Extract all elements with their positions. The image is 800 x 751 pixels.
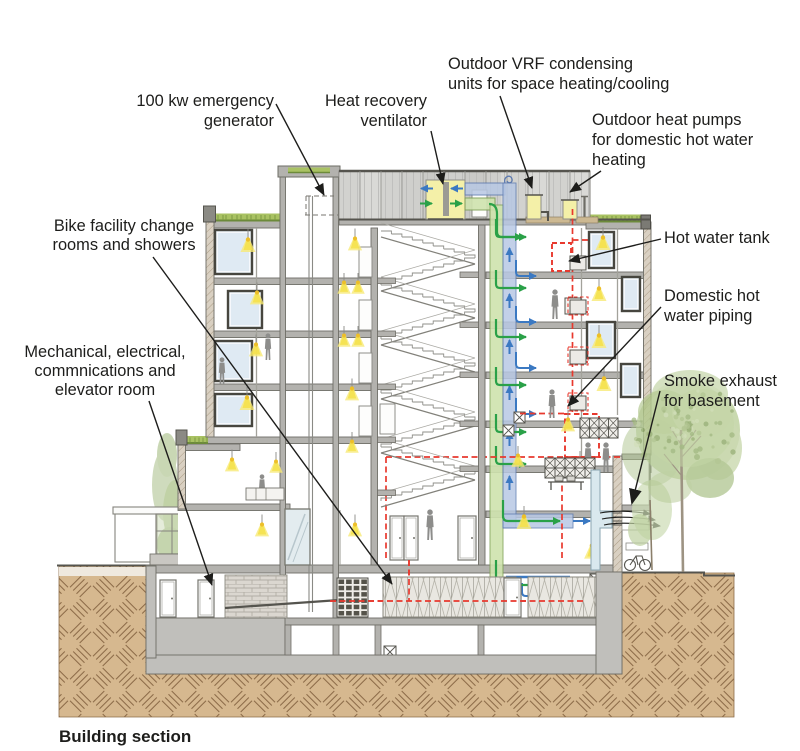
svg-text:water piping: water piping <box>663 307 752 325</box>
svg-text:elevator room: elevator room <box>55 381 155 399</box>
svg-text:generator: generator <box>204 112 275 130</box>
svg-text:Mechanical, electrical,: Mechanical, electrical, <box>24 343 185 361</box>
svg-text:for domestic hot water: for domestic hot water <box>592 131 754 149</box>
svg-text:Outdoor VRF condensing: Outdoor VRF condensing <box>448 55 633 73</box>
svg-text:for basement: for basement <box>664 392 760 410</box>
svg-text:Smoke exhaust: Smoke exhaust <box>664 372 777 390</box>
svg-text:rooms and showers: rooms and showers <box>52 236 195 254</box>
svg-text:Bike facility change: Bike facility change <box>54 217 194 235</box>
svg-text:units for space heating/coolin: units for space heating/cooling <box>448 75 669 93</box>
svg-text:Domestic hot: Domestic hot <box>664 287 760 305</box>
svg-text:commnications and: commnications and <box>34 362 175 380</box>
svg-text:Building section: Building section <box>59 727 191 746</box>
svg-text:Heat recovery: Heat recovery <box>325 92 428 110</box>
svg-text:Hot water tank: Hot water tank <box>664 229 770 247</box>
svg-text:ventilator: ventilator <box>360 112 427 130</box>
svg-text:Outdoor heat pumps: Outdoor heat pumps <box>592 111 741 129</box>
svg-text:100 kw emergency: 100 kw emergency <box>136 92 274 110</box>
svg-text:heating: heating <box>592 151 646 169</box>
